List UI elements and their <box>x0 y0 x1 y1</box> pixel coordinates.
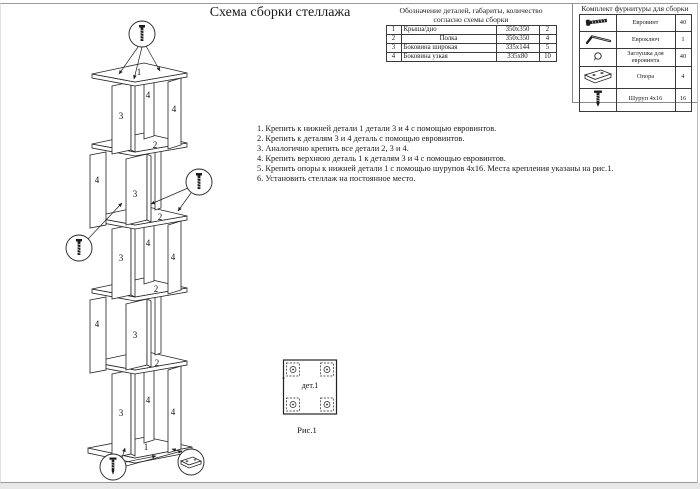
svg-text:1: 1 <box>144 442 149 452</box>
svg-text:3: 3 <box>119 253 124 263</box>
svg-text:4: 4 <box>95 175 100 185</box>
svg-text:4: 4 <box>146 238 151 248</box>
svg-text:1: 1 <box>137 67 142 77</box>
svg-text:2: 2 <box>154 284 159 294</box>
svg-text:4: 4 <box>172 104 177 114</box>
figure-caption: Рис.1 <box>297 425 317 435</box>
svg-text:3: 3 <box>119 408 124 418</box>
svg-text:2: 2 <box>158 212 163 222</box>
figure-1: дет.1 Рис.1 <box>283 360 337 435</box>
svg-text:2: 2 <box>153 140 158 150</box>
svg-text:4: 4 <box>95 319 100 329</box>
svg-text:4: 4 <box>171 407 176 417</box>
shelving-tower: 1 3 4 4 2 4 3 <box>88 63 192 463</box>
svg-text:3: 3 <box>119 111 124 121</box>
svg-text:3: 3 <box>133 330 138 340</box>
svg-text:4: 4 <box>146 90 151 100</box>
callouts <box>66 21 212 480</box>
assembly-diagram: 1 3 4 4 2 4 3 <box>0 0 700 489</box>
edge-mark <box>283 377 285 379</box>
figure-part-label: дет.1 <box>302 381 319 390</box>
svg-text:4: 4 <box>146 395 151 405</box>
svg-text:3: 3 <box>133 189 138 199</box>
svg-text:4: 4 <box>171 252 176 262</box>
svg-text:2: 2 <box>155 358 160 368</box>
